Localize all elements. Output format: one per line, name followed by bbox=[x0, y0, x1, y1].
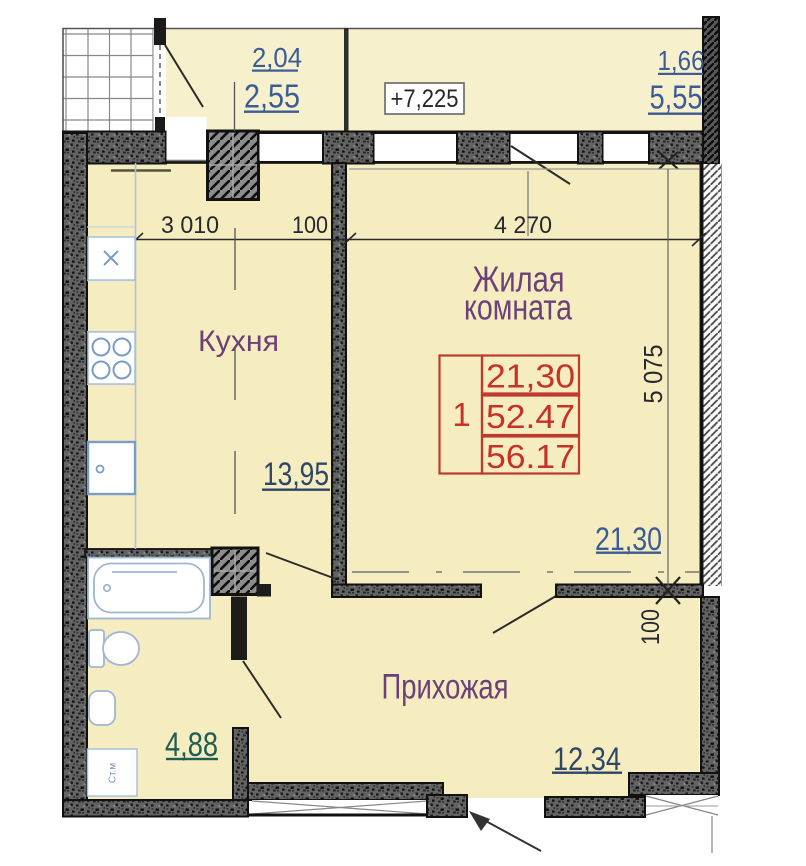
svg-text:100: 100 bbox=[637, 609, 665, 645]
svg-text:4 270: 4 270 bbox=[494, 212, 552, 239]
svg-text:5,55: 5,55 bbox=[650, 79, 703, 116]
svg-text:1: 1 bbox=[452, 396, 470, 433]
svg-text:+7,225: +7,225 bbox=[391, 85, 459, 113]
svg-text:3 010: 3 010 bbox=[161, 212, 219, 239]
svg-text:2,04: 2,04 bbox=[252, 42, 302, 73]
svg-text:комната: комната bbox=[464, 287, 573, 328]
svg-text:21,30: 21,30 bbox=[486, 358, 575, 395]
svg-text:56.17: 56.17 bbox=[486, 438, 575, 475]
svg-text:2,55: 2,55 bbox=[244, 78, 300, 115]
svg-text:Прихожая: Прихожая bbox=[382, 668, 509, 707]
svg-text:5 075: 5 075 bbox=[638, 345, 668, 404]
svg-text:13,95: 13,95 bbox=[263, 456, 329, 492]
svg-text:Кухня: Кухня bbox=[198, 325, 279, 358]
svg-text:100: 100 bbox=[292, 212, 328, 239]
svg-text:Ст.м: Ст.м bbox=[108, 763, 119, 783]
svg-text:1,66: 1,66 bbox=[658, 45, 705, 76]
svg-text:52.47: 52.47 bbox=[486, 398, 575, 435]
